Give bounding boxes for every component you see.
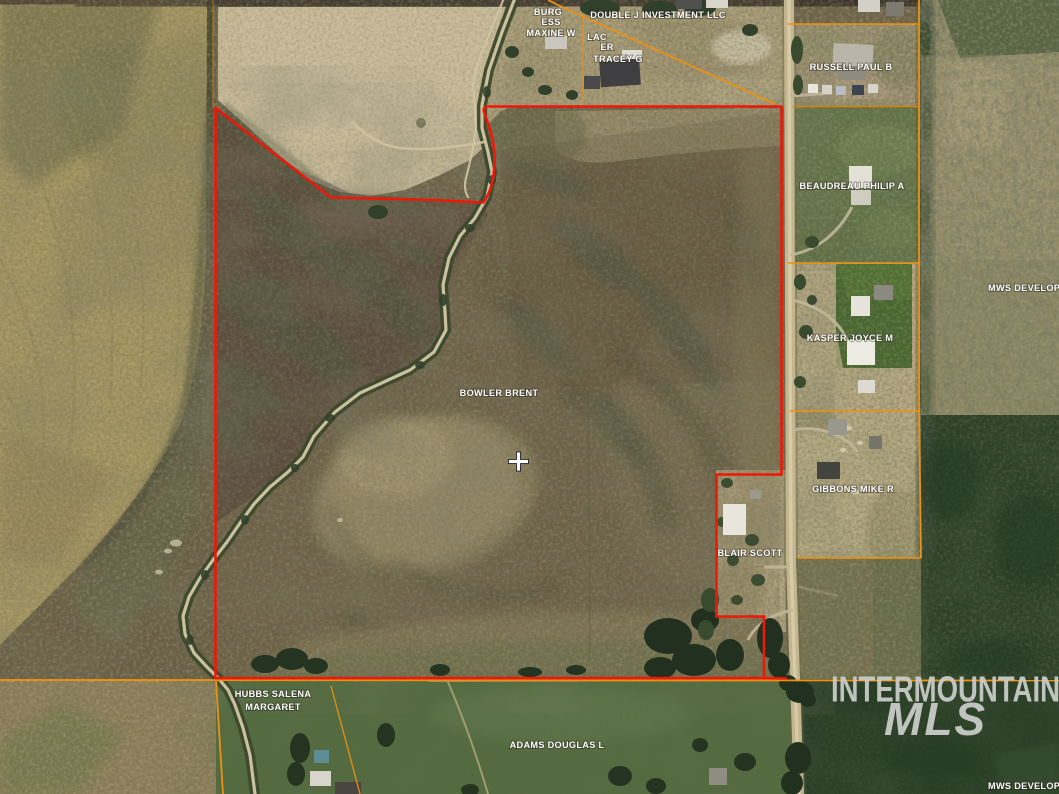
svg-text:MAXINE W: MAXINE W (526, 28, 575, 38)
svg-text:RUSSELL PAUL B: RUSSELL PAUL B (810, 62, 893, 72)
svg-text:ER: ER (600, 42, 613, 52)
svg-text:MLS: MLS (884, 693, 987, 745)
svg-text:LAC: LAC (587, 32, 607, 42)
svg-text:MWS DEVELOPMENT: MWS DEVELOPMENT (988, 781, 1059, 791)
svg-text:TRACEY G: TRACEY G (593, 54, 643, 64)
svg-text:GIBBONS MIKE R: GIBBONS MIKE R (812, 484, 894, 494)
svg-text:KASPER JOYCE M: KASPER JOYCE M (807, 333, 893, 343)
svg-text:BOWLER BRENT: BOWLER BRENT (460, 388, 539, 398)
svg-text:BEAUDREAU PHILIP A: BEAUDREAU PHILIP A (800, 181, 905, 191)
svg-text:BURG: BURG (534, 7, 562, 17)
svg-text:MWS DEVELOPMENT: MWS DEVELOPMENT (988, 283, 1059, 293)
svg-text:MARGARET: MARGARET (245, 702, 301, 712)
svg-text:ADAMS DOUGLAS L: ADAMS DOUGLAS L (510, 740, 605, 750)
svg-text:BLAIR SCOTT: BLAIR SCOTT (717, 548, 782, 558)
svg-text:ESS: ESS (541, 17, 560, 27)
svg-text:HUBBS SALENA: HUBBS SALENA (235, 689, 312, 699)
svg-text:DOUBLE J INVESTMENT LLC: DOUBLE J INVESTMENT LLC (590, 10, 726, 20)
